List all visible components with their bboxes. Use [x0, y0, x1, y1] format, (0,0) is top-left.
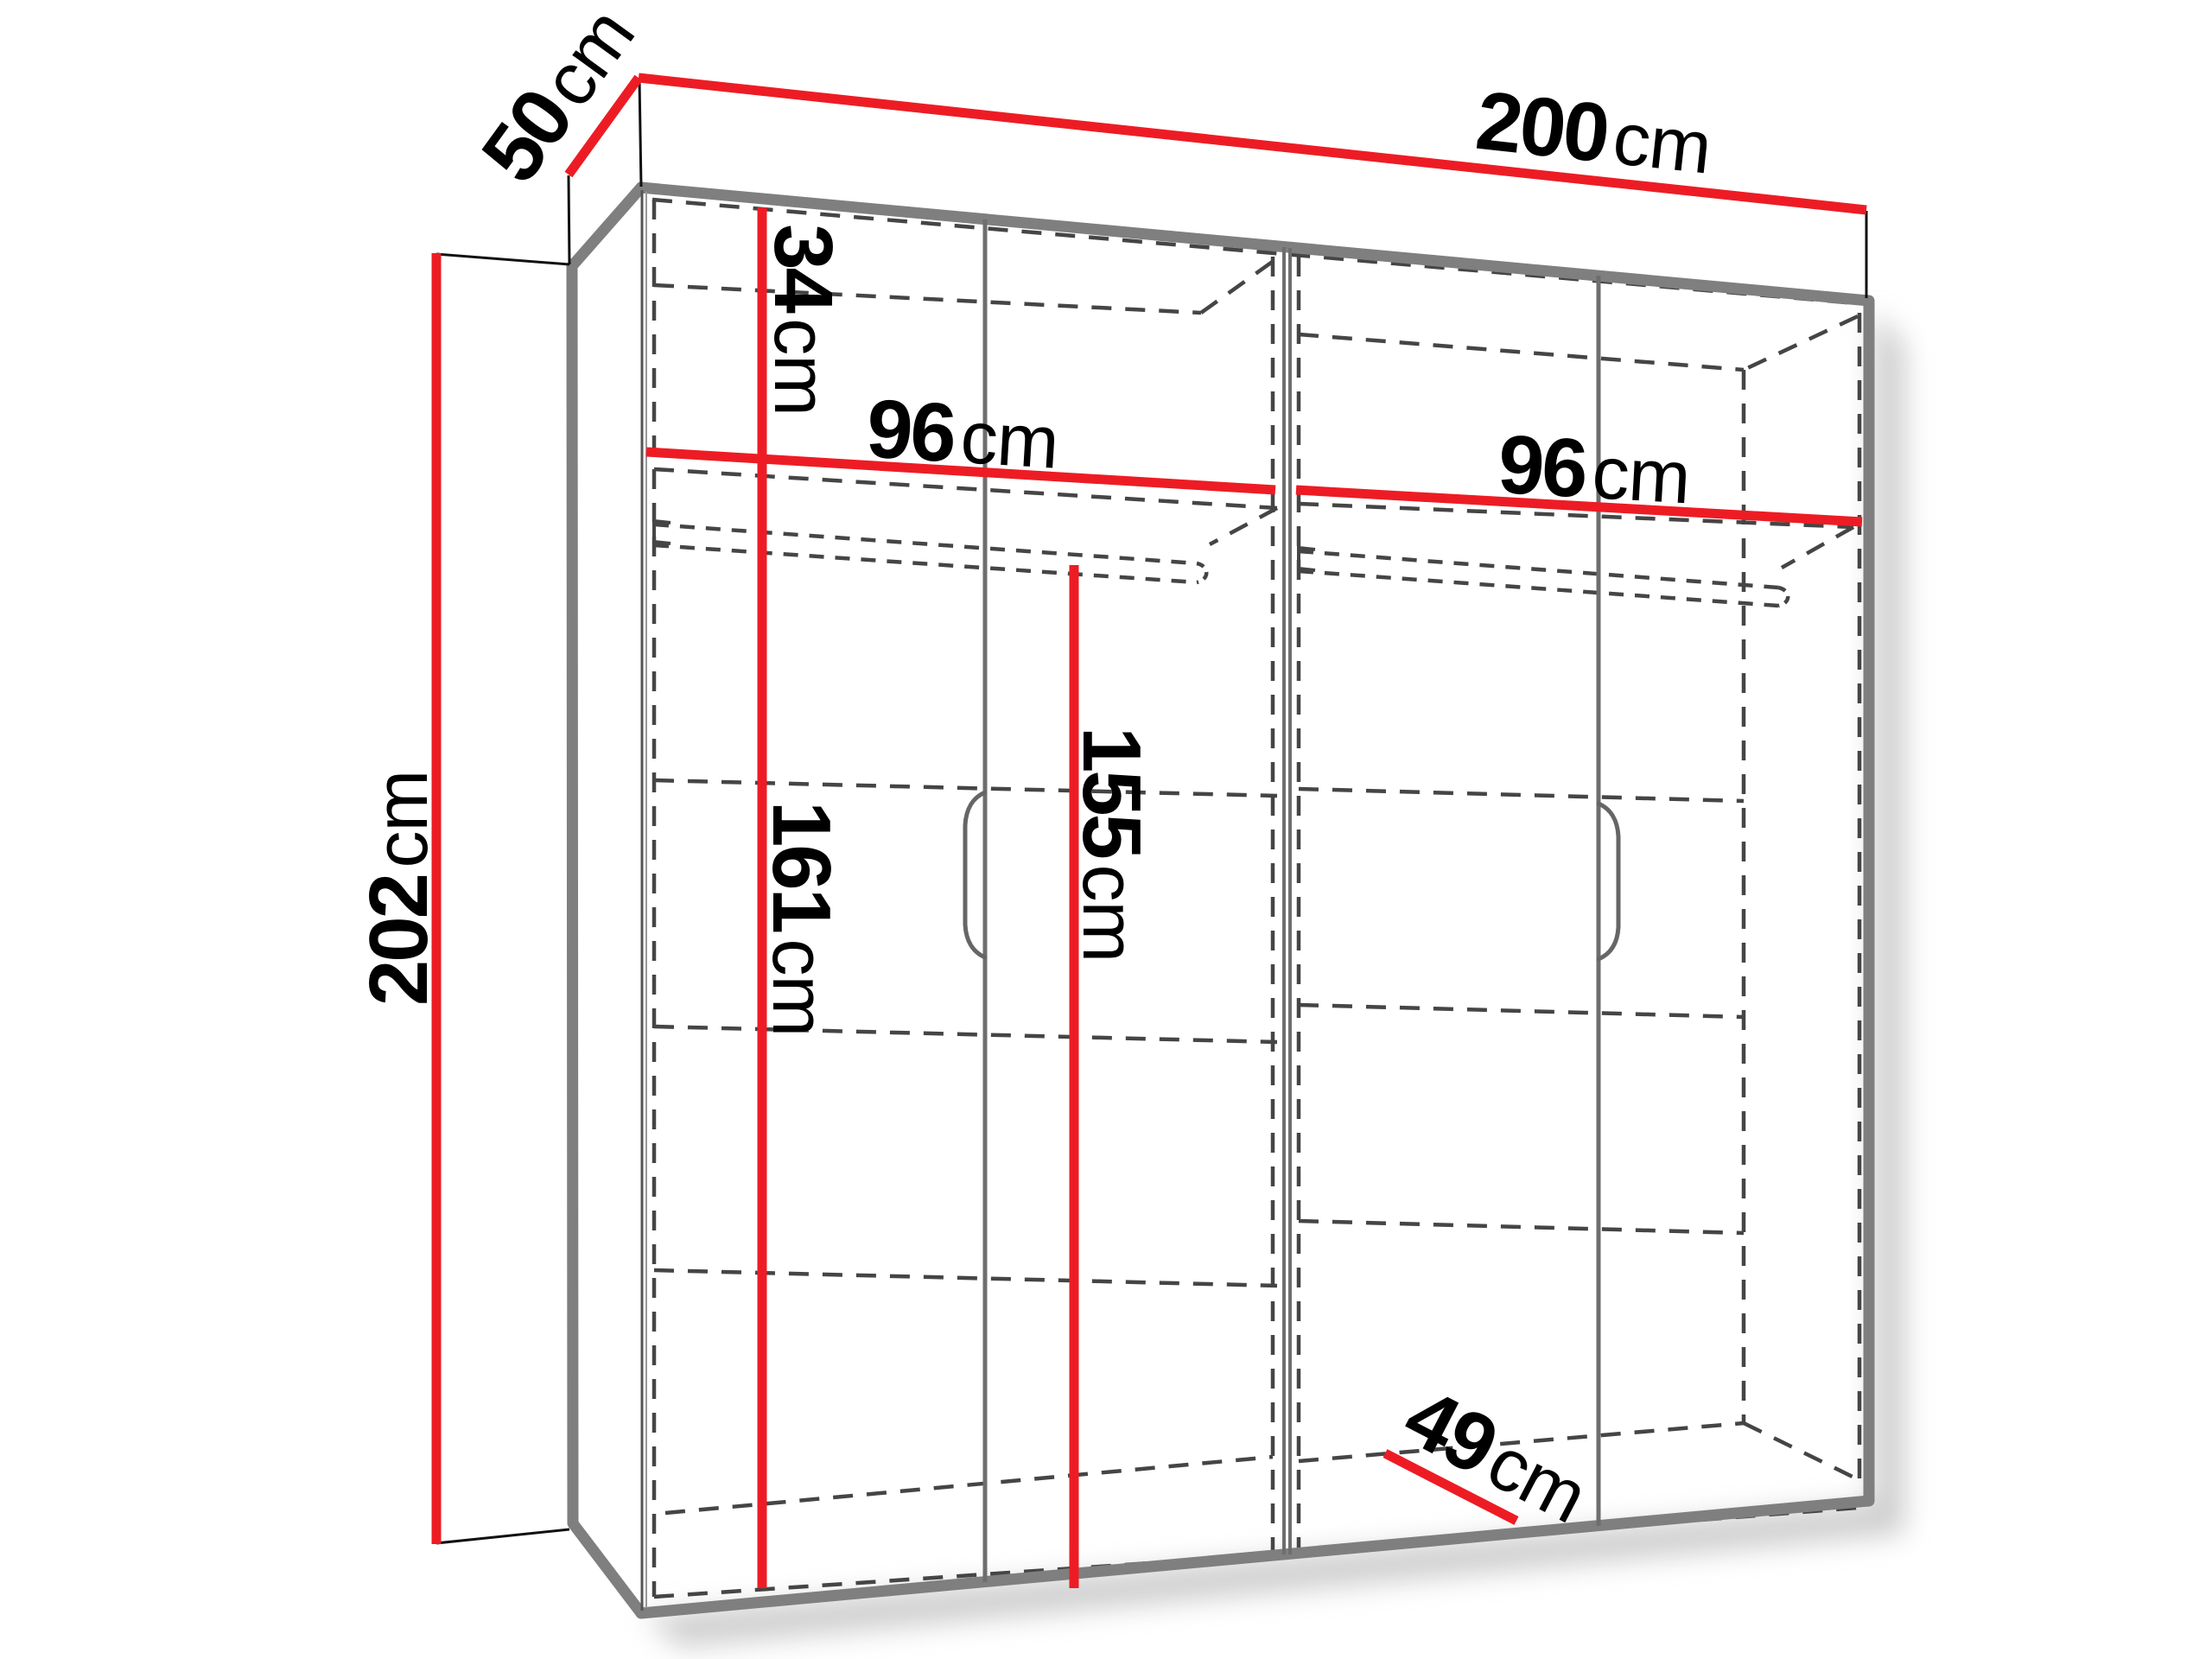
width-extension-left [639, 79, 641, 187]
hanging-height-label: 155 cm [1065, 727, 1158, 962]
right-shelf-1 [1299, 789, 1744, 801]
top-shelf-value: 34 [757, 224, 849, 313]
height-value: 202 [353, 875, 445, 1006]
left-rod-top [654, 524, 1197, 563]
right-section-width-label: 96 cm [1496, 418, 1693, 522]
width-value: 200 [1471, 74, 1611, 181]
left-interior-height-label: 161 cm [755, 801, 848, 1036]
top-shelf-label: 34 cm [757, 224, 849, 416]
width-unit: cm [1609, 97, 1714, 190]
left-section-width-value: 96 [864, 382, 957, 480]
diagram-canvas: 200 cm 50 cm 202 cm 34 cm 96 cm 96 cm 16… [0, 0, 2212, 1659]
left-side-panel-outline [572, 188, 641, 1613]
hanging-rods [654, 518, 1788, 606]
left-backwall-top-edge [654, 285, 1201, 313]
left-shelf-1 [654, 780, 1277, 796]
left-door-handle [965, 792, 985, 957]
height-unit: cm [360, 771, 443, 868]
left-floor-back-edge [665, 1457, 1273, 1513]
top-shelf-unit: cm [759, 318, 842, 416]
height-extension-bottom [436, 1529, 569, 1543]
right-section-width-value: 96 [1496, 418, 1588, 516]
right-rod-top [1299, 551, 1778, 588]
top-right-depth-diagonal [1744, 316, 1858, 370]
left-section-width-unit: cm [958, 396, 1060, 485]
left-section-width-label: 96 cm [864, 382, 1061, 486]
height-extension-top [436, 254, 569, 264]
right-shelf-2 [1299, 1005, 1744, 1017]
left-rod-bottom [654, 545, 1197, 582]
left-shelf-2 [654, 1027, 1277, 1042]
right-section-width-unit: cm [1590, 431, 1692, 519]
height-label: 202 cm [353, 771, 445, 1006]
left-interior-height-value: 161 [755, 801, 848, 932]
right-door-handle [1599, 804, 1618, 959]
wardrobe-dimension-diagram: 200 cm 50 cm 202 cm 34 cm 96 cm 96 cm 16… [0, 0, 2212, 1659]
bottom-right-depth-diagonal [1744, 1423, 1858, 1479]
right-backwall-top-edge [1299, 334, 1744, 370]
right-rod-bottom [1299, 571, 1778, 606]
right-rod-end-cap [1778, 588, 1788, 606]
right-top-shelf-depth-diagonal [1782, 527, 1853, 568]
left-top-shelf-depth-diagonal [1210, 508, 1277, 544]
right-shelf-3 [1299, 1221, 1744, 1233]
depth-extension [569, 175, 569, 264]
left-rod-end-cap [1197, 563, 1206, 582]
left-interior-height-unit: cm [757, 938, 840, 1036]
left-backwall-top-diagonal [1201, 258, 1277, 313]
left-shelf-3 [654, 1270, 1277, 1286]
hanging-height-unit: cm [1067, 864, 1150, 962]
hanging-height-value: 155 [1065, 727, 1158, 858]
